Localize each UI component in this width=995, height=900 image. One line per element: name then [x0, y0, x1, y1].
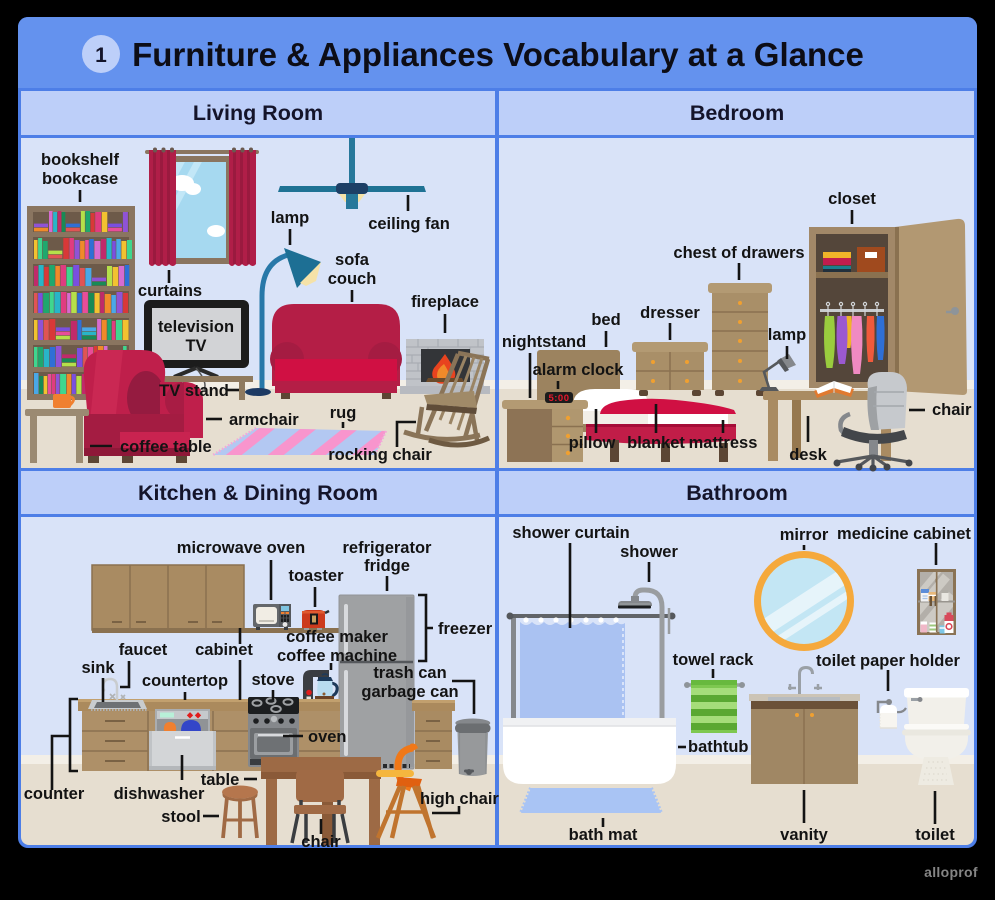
svg-text:armchair: armchair: [229, 411, 299, 429]
svg-text:oven: oven: [308, 728, 347, 746]
svg-text:Living Room: Living Room: [193, 101, 323, 125]
svg-text:alloprof: alloprof: [924, 864, 978, 880]
svg-text:pillow: pillow: [569, 434, 616, 452]
svg-text:alarm clock: alarm clock: [533, 361, 625, 379]
svg-text:television: television: [158, 318, 234, 336]
svg-text:TV stand: TV stand: [159, 382, 229, 400]
svg-text:fireplace: fireplace: [411, 293, 479, 311]
svg-text:bookshelf: bookshelf: [41, 151, 119, 169]
svg-text:ceiling fan: ceiling fan: [368, 215, 450, 233]
svg-text:bed: bed: [591, 311, 620, 329]
svg-text:faucet: faucet: [119, 641, 168, 659]
svg-text:desk: desk: [789, 446, 827, 464]
svg-text:towel rack: towel rack: [673, 651, 755, 669]
svg-text:mattress: mattress: [689, 434, 758, 452]
svg-text:shower: shower: [620, 543, 678, 561]
svg-text:bookcase: bookcase: [42, 170, 118, 188]
svg-text:closet: closet: [828, 190, 876, 208]
svg-text:toaster: toaster: [288, 567, 344, 585]
svg-text:Furniture & Appliances Vocabul: Furniture & Appliances Vocabulary at a G…: [132, 36, 864, 73]
svg-text:stove: stove: [251, 671, 294, 689]
svg-text:1: 1: [95, 44, 107, 67]
svg-text:couch: couch: [328, 270, 377, 288]
svg-text:countertop: countertop: [142, 672, 228, 690]
svg-text:TV: TV: [185, 337, 206, 355]
svg-text:Bedroom: Bedroom: [690, 101, 784, 125]
svg-text:shower curtain: shower curtain: [512, 524, 629, 542]
svg-text:chest of drawers: chest of drawers: [673, 244, 804, 262]
svg-text:sink: sink: [81, 659, 115, 677]
svg-text:high chair: high chair: [420, 790, 499, 808]
svg-text:curtains: curtains: [138, 282, 202, 300]
svg-text:sofa: sofa: [335, 251, 370, 269]
svg-text:dresser: dresser: [640, 304, 700, 322]
svg-text:mirror: mirror: [780, 526, 829, 544]
svg-text:bathtub: bathtub: [688, 738, 748, 756]
svg-text:5:00: 5:00: [548, 393, 569, 404]
svg-text:lamp: lamp: [768, 326, 807, 344]
svg-text:chair: chair: [932, 401, 972, 419]
svg-text:garbage can: garbage can: [361, 683, 458, 701]
svg-text:toilet: toilet: [915, 826, 955, 844]
svg-text:counter: counter: [24, 785, 85, 803]
svg-text:fridge: fridge: [364, 557, 410, 575]
svg-text:stool: stool: [161, 808, 200, 826]
svg-text:trash can: trash can: [373, 664, 446, 682]
svg-text:nightstand: nightstand: [502, 333, 586, 351]
svg-text:freezer: freezer: [438, 620, 493, 638]
svg-text:Kitchen & Dining Room: Kitchen & Dining Room: [138, 481, 378, 505]
svg-text:cabinet: cabinet: [195, 641, 253, 659]
svg-text:coffee maker: coffee maker: [286, 628, 388, 646]
svg-text:coffee machine: coffee machine: [277, 647, 397, 665]
svg-text:chair: chair: [301, 833, 341, 851]
svg-text:coffee table: coffee table: [120, 438, 212, 456]
svg-text:vanity: vanity: [780, 826, 829, 844]
svg-text:dishwasher: dishwasher: [114, 785, 205, 803]
svg-text:lamp: lamp: [271, 209, 310, 227]
svg-text:medicine cabinet: medicine cabinet: [837, 525, 971, 543]
svg-text:rug: rug: [330, 404, 357, 422]
svg-text:blanket: blanket: [627, 434, 685, 452]
svg-text:table: table: [201, 771, 240, 789]
svg-text:rocking chair: rocking chair: [328, 446, 432, 464]
svg-text:microwave oven: microwave oven: [177, 539, 305, 557]
svg-text:toilet paper holder: toilet paper holder: [816, 652, 961, 670]
svg-text:bath mat: bath mat: [569, 826, 638, 844]
svg-text:Bathroom: Bathroom: [686, 481, 788, 505]
svg-text:refrigerator: refrigerator: [343, 539, 433, 557]
